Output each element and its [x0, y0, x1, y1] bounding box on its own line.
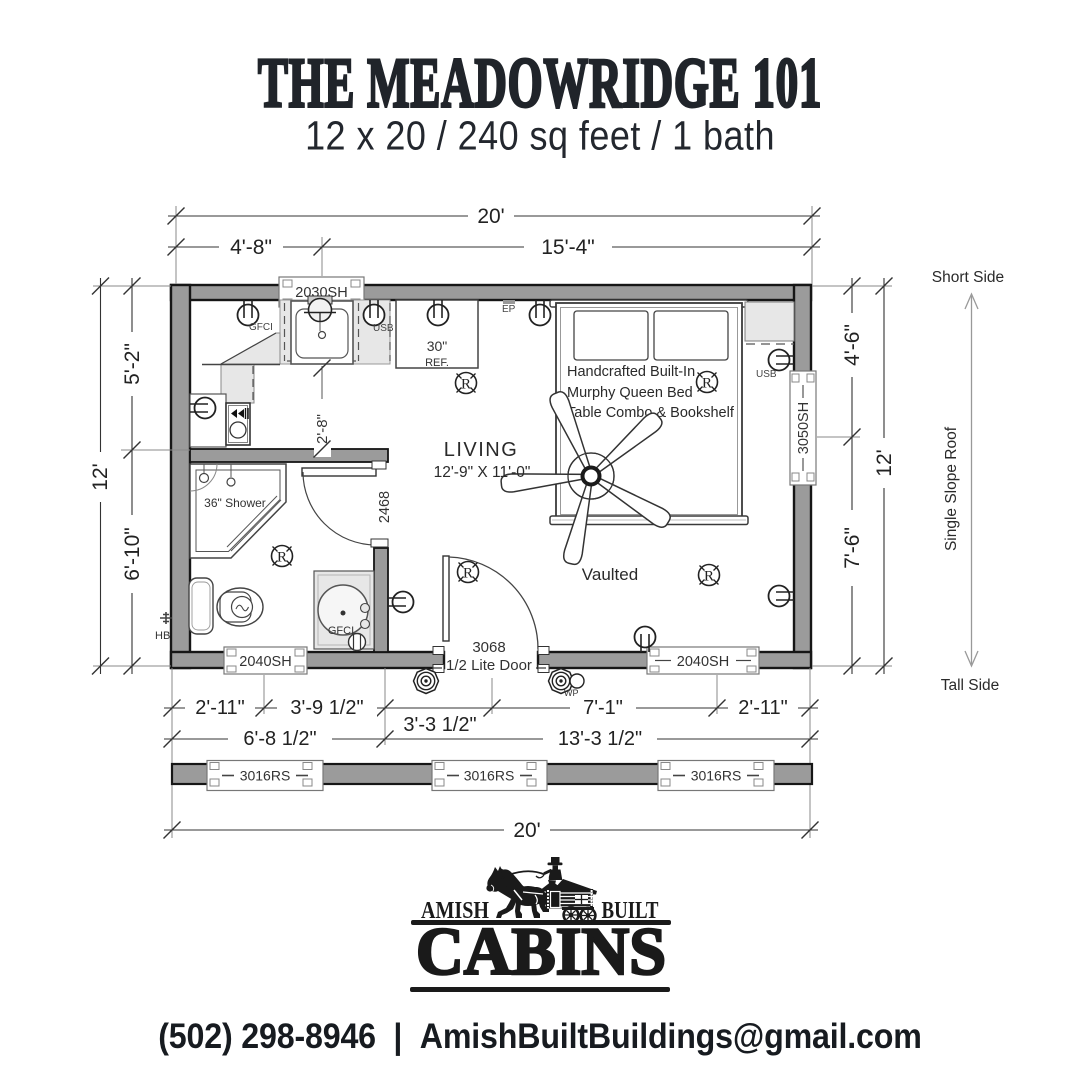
svg-text:4'-6": 4'-6" [841, 324, 864, 366]
svg-text:2'-8": 2'-8" [314, 414, 331, 444]
svg-text:USB: USB [373, 323, 394, 334]
svg-text:EP: EP [502, 304, 516, 315]
svg-text:Tall Side: Tall Side [941, 677, 1000, 694]
svg-text:Vaulted: Vaulted [582, 565, 638, 584]
svg-text:6'-8 1/2": 6'-8 1/2" [243, 728, 316, 750]
svg-text:CABINS: CABINS [416, 913, 666, 989]
svg-text:2040SH: 2040SH [239, 654, 291, 670]
svg-text:Short Side: Short Side [932, 269, 1004, 286]
svg-text:20': 20' [513, 819, 540, 842]
svg-text:3068: 3068 [472, 639, 505, 656]
svg-text:12': 12' [89, 463, 112, 490]
svg-text:GFCI: GFCI [249, 322, 273, 333]
svg-text:2'-11": 2'-11" [195, 697, 244, 719]
svg-text:15'-4": 15'-4" [541, 236, 595, 259]
svg-text:5'-2": 5'-2" [121, 343, 144, 385]
svg-text:3'-9 1/2": 3'-9 1/2" [290, 697, 363, 719]
svg-text:12': 12' [873, 449, 896, 476]
svg-text:Single Slope Roof: Single Slope Roof [943, 426, 960, 551]
svg-text:3016RS: 3016RS [240, 768, 291, 784]
svg-text:3'-3 1/2": 3'-3 1/2" [403, 714, 476, 736]
svg-text:1/2 Lite Door: 1/2 Lite Door [446, 657, 532, 674]
svg-text:7'-1": 7'-1" [583, 697, 623, 719]
svg-text:2468: 2468 [377, 491, 393, 523]
svg-text:20': 20' [477, 205, 504, 228]
svg-text:2040SH: 2040SH [677, 654, 729, 670]
svg-text:LIVING: LIVING [444, 439, 519, 461]
svg-text:3016RS: 3016RS [464, 768, 515, 784]
svg-text:REF.: REF. [425, 357, 449, 369]
svg-text:USB: USB [756, 369, 777, 380]
svg-text:Handcrafted Built-In: Handcrafted Built-In [567, 364, 695, 380]
svg-text:36" Shower: 36" Shower [204, 496, 266, 510]
svg-text:GFCI: GFCI [328, 625, 354, 637]
svg-text:Murphy Queen Bed: Murphy Queen Bed [567, 385, 693, 401]
svg-text:6'-10": 6'-10" [121, 527, 144, 581]
svg-text:7'-6": 7'-6" [841, 527, 864, 569]
svg-text:HB: HB [155, 630, 170, 642]
svg-text:13'-3 1/2": 13'-3 1/2" [558, 728, 642, 750]
svg-text:3050SH: 3050SH [796, 402, 812, 454]
svg-text:12'-9" X 11'-0": 12'-9" X 11'-0" [434, 464, 531, 481]
svg-text:3016RS: 3016RS [691, 768, 742, 784]
svg-text:4'-8": 4'-8" [230, 236, 272, 259]
svg-text:30": 30" [427, 338, 448, 354]
svg-text:2'-11": 2'-11" [738, 697, 787, 719]
svg-text:WP: WP [564, 688, 579, 698]
